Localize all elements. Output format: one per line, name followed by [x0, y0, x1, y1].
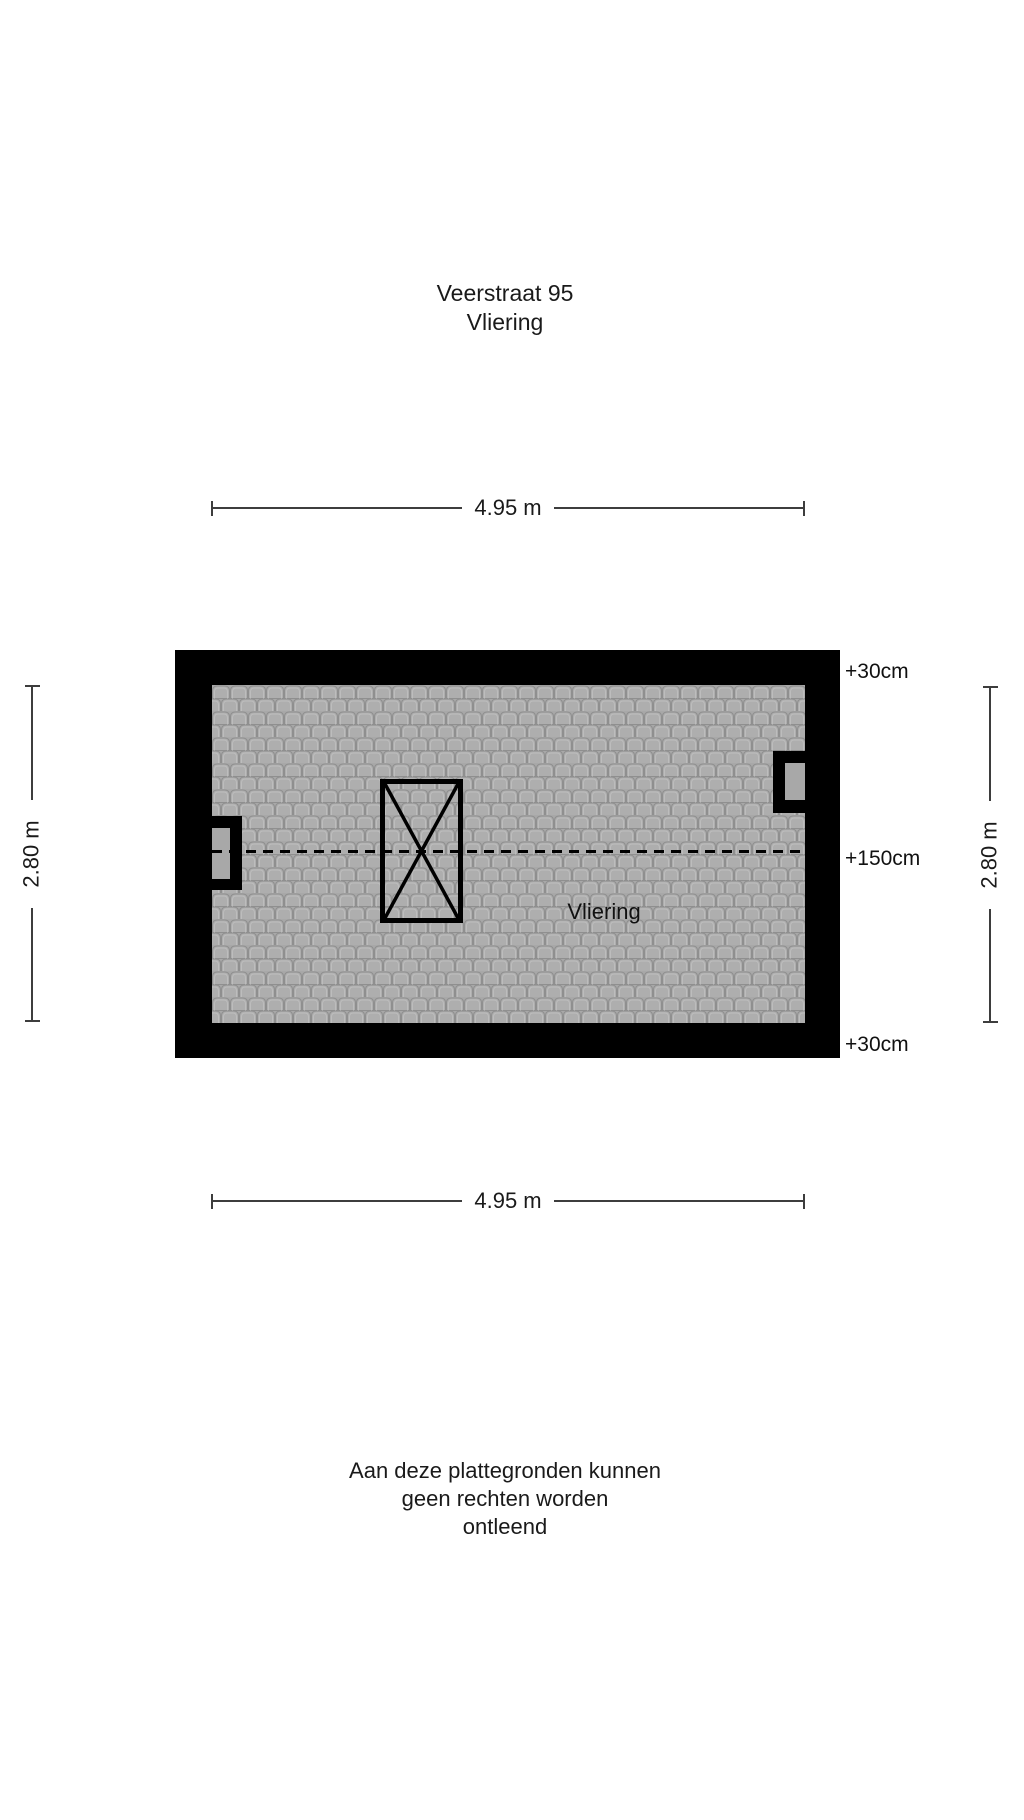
dimension-end-tick: [983, 1021, 998, 1023]
dimension-line-segment: [989, 688, 991, 801]
dimension-height-right-label-wrap: 2.80 m: [956, 801, 1023, 909]
disclaimer-line-3: ontleend: [5, 1513, 1005, 1541]
disclaimer-line-1: Aan deze plattegronden kunnen: [5, 1457, 1005, 1485]
dimension-line-segment: [213, 1200, 462, 1202]
chimney-left-opening: [212, 828, 230, 879]
dimension-end-tick: [803, 501, 805, 516]
page-title: Veerstraat 95: [5, 279, 1005, 308]
dimension-height-right: 2.80 m: [974, 686, 1006, 1023]
page-subtitle: Vliering: [5, 308, 1005, 337]
headroom-dashed-line: [212, 850, 805, 853]
dimension-end-tick: [803, 1194, 805, 1209]
dimension-height-left-label-wrap: 2.80 m: [0, 800, 66, 908]
dimension-height-left: 2.80 m: [16, 685, 48, 1022]
chimney-right-opening: [785, 763, 805, 800]
dimension-line-segment: [554, 1200, 803, 1202]
dimension-width-bottom-label: 4.95 m: [462, 1188, 553, 1214]
chimney-left: [212, 816, 242, 890]
dimension-width-top-label: 4.95 m: [462, 495, 553, 521]
elevation-label-bottom: +30cm: [845, 1033, 909, 1057]
dimension-width-bottom: 4.95 m: [211, 1193, 805, 1209]
dimension-width-top: 4.95 m: [211, 500, 805, 516]
floorplan-page: Veerstraat 95 Vliering 4.95 m 2.80 m 2.8…: [0, 0, 1024, 1820]
chimney-right: [773, 751, 805, 813]
disclaimer-line-2: geen rechten worden: [5, 1485, 1005, 1513]
dimension-line-segment: [213, 507, 462, 509]
dimension-line-segment: [554, 507, 803, 509]
room-label: Vliering: [567, 899, 640, 925]
dimension-height-left-label: 2.80 m: [19, 820, 45, 887]
dimension-height-right-label: 2.80 m: [977, 821, 1003, 888]
elevation-label-middle: +150cm: [845, 847, 920, 871]
title-block: Veerstraat 95 Vliering: [5, 279, 1005, 337]
dimension-line-segment: [31, 687, 33, 800]
roof-tiles-hatch-pattern: [212, 685, 805, 1023]
floor-plan: Vliering: [175, 650, 840, 1058]
elevation-label-top: +30cm: [845, 660, 909, 684]
dimension-line-segment: [989, 909, 991, 1022]
dimension-end-tick: [25, 1020, 40, 1022]
disclaimer: Aan deze plattegronden kunnen geen recht…: [5, 1457, 1005, 1541]
dimension-line-segment: [31, 908, 33, 1021]
